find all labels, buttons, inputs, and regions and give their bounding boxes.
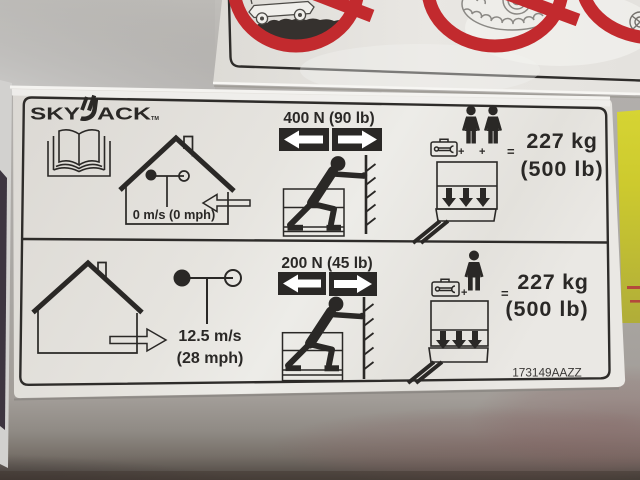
svg-text:200 N (45 lb): 200 N (45 lb) [281, 255, 372, 272]
svg-text:+: + [461, 287, 467, 299]
svg-text:TM: TM [151, 116, 159, 122]
svg-text:(500 lb): (500 lb) [520, 157, 603, 181]
svg-text:SKY: SKY [30, 104, 80, 124]
svg-text:173149AAZZ: 173149AAZZ [512, 366, 582, 380]
svg-text:+: + [479, 146, 485, 158]
svg-text:400 N (90 lb): 400 N (90 lb) [283, 110, 374, 127]
svg-text:ACK: ACK [97, 104, 152, 124]
svg-text:12.5 m/s: 12.5 m/s [178, 328, 241, 345]
svg-text:(500 lb): (500 lb) [505, 297, 588, 321]
svg-text:227 kg: 227 kg [526, 129, 597, 153]
svg-text:0 m/s (0 mph): 0 m/s (0 mph) [133, 207, 216, 222]
svg-text:(28 mph): (28 mph) [177, 350, 244, 367]
svg-text:+: + [458, 146, 464, 158]
svg-text:227 kg: 227 kg [517, 270, 588, 294]
svg-text:=: = [507, 144, 515, 159]
